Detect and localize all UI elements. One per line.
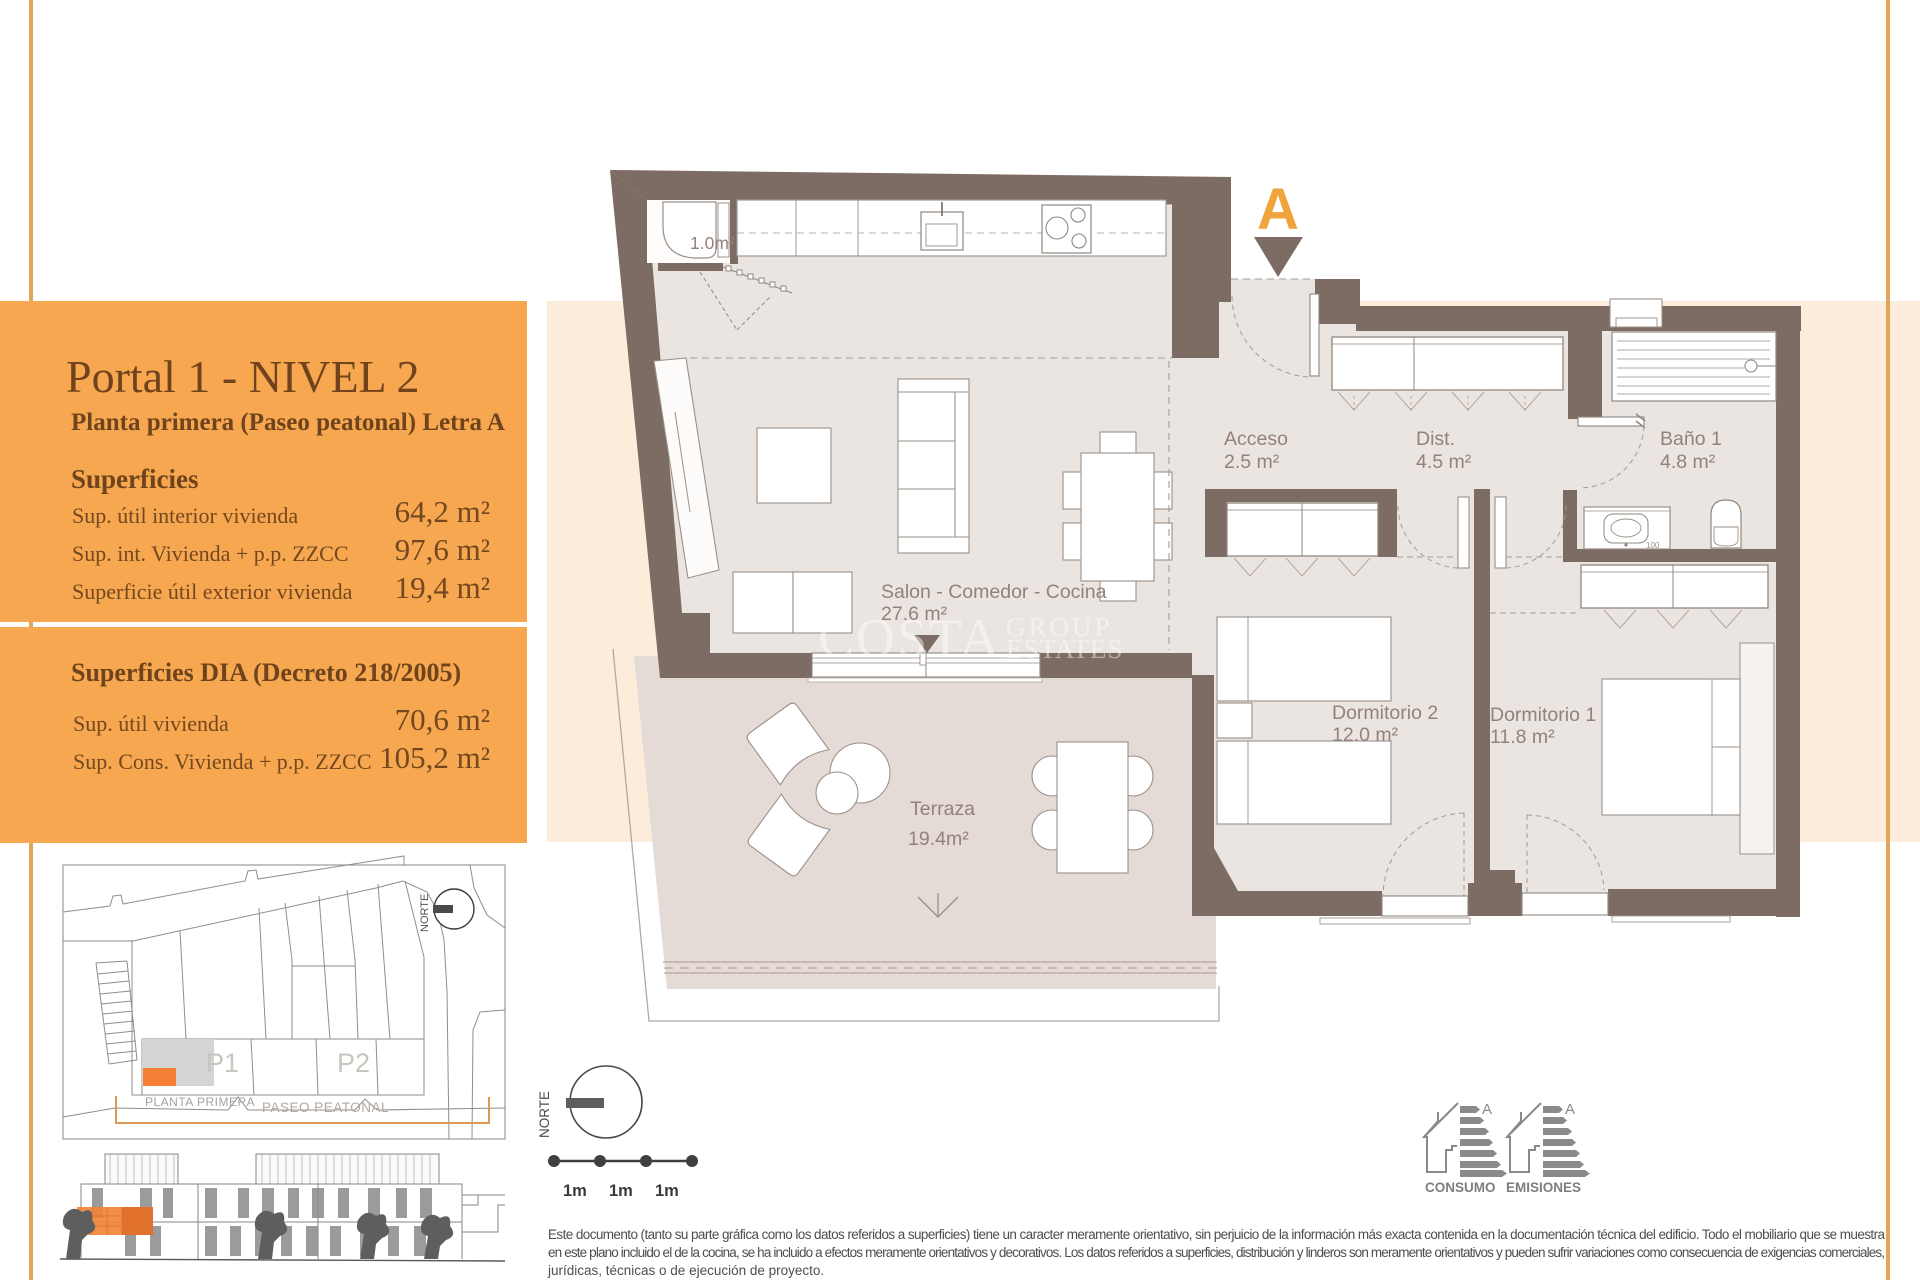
svg-text:1m: 1m — [609, 1182, 633, 1200]
svg-text:en este plano incluido el de l: en este plano incluido el de la cocina, … — [548, 1245, 1885, 1260]
svg-text:P1: P1 — [206, 1048, 239, 1078]
svg-text:Superficies: Superficies — [71, 464, 199, 494]
svg-text:19,4 m²: 19,4 m² — [395, 570, 490, 605]
svg-text:Este documento (tanto su parte: Este documento (tanto su parte gráfica c… — [548, 1227, 1885, 1242]
svg-text:12.0 m²: 12.0 m² — [1332, 724, 1399, 746]
svg-text:EMISIONES: EMISIONES — [1506, 1180, 1581, 1195]
svg-text:A: A — [1565, 1101, 1575, 1118]
svg-text:19.4m²: 19.4m² — [908, 828, 969, 850]
svg-text:105,2 m²: 105,2 m² — [379, 740, 490, 775]
svg-text:NORTE: NORTE — [419, 894, 431, 932]
svg-text:CONSUMO: CONSUMO — [1425, 1180, 1496, 1195]
svg-text:100: 100 — [1646, 541, 1660, 550]
svg-text:Superficie útil exterior vivie: Superficie útil exterior vivienda — [72, 579, 353, 604]
svg-text:P2: P2 — [337, 1048, 370, 1078]
svg-text:Sup. útil vivienda: Sup. útil vivienda — [73, 711, 229, 736]
svg-text:4.5 m²: 4.5 m² — [1416, 451, 1472, 473]
svg-text:4.8 m²: 4.8 m² — [1660, 451, 1716, 473]
svg-text:A: A — [1257, 177, 1299, 242]
svg-text:Sup. int. Vivienda + p.p. ZZCC: Sup. int. Vivienda + p.p. ZZCC — [72, 541, 349, 566]
svg-text:COSTA: COSTA — [818, 608, 1001, 668]
svg-text:Planta primera (Paseo peatonal: Planta primera (Paseo peatonal) Letra A — [71, 409, 505, 436]
svg-text:Superficies DIA (Decreto 218/2: Superficies DIA (Decreto 218/2005) — [71, 658, 461, 687]
svg-text:Portal 1 - NIVEL 2: Portal 1 - NIVEL 2 — [66, 351, 419, 402]
svg-text:97,6 m²: 97,6 m² — [395, 532, 490, 567]
svg-text:NORTE: NORTE — [537, 1091, 552, 1138]
svg-text:Dist.: Dist. — [1416, 428, 1455, 450]
svg-text:Terraza: Terraza — [910, 798, 975, 820]
svg-text:Dormitorio 2: Dormitorio 2 — [1332, 702, 1438, 724]
svg-text:1m: 1m — [563, 1182, 587, 1200]
svg-text:Dormitorio 1: Dormitorio 1 — [1490, 704, 1596, 726]
svg-text:2.5 m²: 2.5 m² — [1224, 451, 1280, 473]
svg-text:1.0m²: 1.0m² — [690, 233, 735, 253]
svg-text:70,6 m²: 70,6 m² — [395, 702, 490, 737]
svg-text:Salon - Comedor - Cocina: Salon - Comedor - Cocina — [881, 581, 1107, 603]
svg-text:Baño 1: Baño 1 — [1660, 428, 1722, 450]
svg-text:Acceso: Acceso — [1224, 428, 1288, 450]
svg-text:PLANTA PRIMERA: PLANTA PRIMERA — [145, 1095, 255, 1109]
svg-text:Sup. Cons. Vivienda + p.p. ZZC: Sup. Cons. Vivienda + p.p. ZZCC — [73, 749, 372, 774]
svg-text:PASEO PEATONAL: PASEO PEATONAL — [262, 1100, 389, 1115]
svg-text:64,2 m²: 64,2 m² — [395, 494, 490, 529]
svg-text:ESTATES: ESTATES — [1006, 634, 1123, 664]
svg-text:A: A — [1482, 1101, 1492, 1118]
svg-text:Sup. útil interior vivienda: Sup. útil interior vivienda — [72, 503, 298, 528]
svg-text:1m: 1m — [655, 1182, 679, 1200]
svg-text:11.8 m²: 11.8 m² — [1490, 726, 1555, 748]
svg-text:jurídicas, técnicas o de ejecu: jurídicas, técnicas o de ejecución de pr… — [547, 1263, 824, 1278]
